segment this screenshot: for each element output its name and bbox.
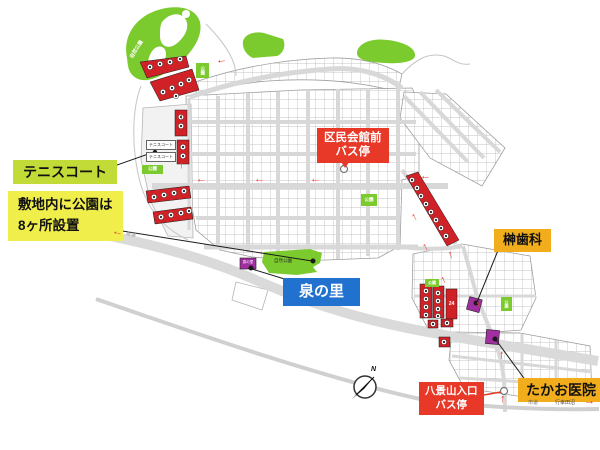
izumi-no-sato-callout: 泉の里 [283,278,360,306]
compass-icon [352,376,376,399]
hakkeyama-bus-stop-callout: 八景山入口 バス停 [419,382,484,415]
tennis-court-callout: テニスコート [13,160,117,184]
parks-note-line1: 敷地内に公園は [18,195,113,216]
compass-north-label: N [371,366,376,373]
one-way-arrow-up: ↑ [499,350,505,361]
one-way-arrow-left: ← [310,174,321,185]
one-way-arrow-left: ← [420,171,431,182]
one-way-arrow-up: ↑ [500,394,506,405]
map-canvas: テニスコート 敷地内に公園は 8ヶ所設置 泉の里 区民会館前 バス停 榊歯科 た… [0,0,600,450]
one-way-arrow-left: ← [215,54,227,66]
park-badge-1: 公園 [196,63,209,78]
kumin-line2: バス停 [324,145,382,159]
park-badge-4: 公園 [425,279,439,287]
hakkeyama-line1: 八景山入口 [425,385,478,399]
kumin-kaikan-bus-stop-callout: 区民会館前 バス停 [317,128,389,163]
park-badge-3: 公園 [361,194,377,206]
park-badge-5: 公園 [501,297,512,311]
city-road-label: 市道 [528,399,538,406]
prefectural-road-label: 県道 [125,230,136,239]
one-way-arrow-left: ← [196,174,207,185]
one-way-arrow-up: ↑ [179,160,185,171]
nature-park-label-mid: 自然公園 [274,258,292,264]
hakkeyama-line2: バス停 [425,399,478,413]
miyukida-numa-label: 行幸田沼 [555,399,575,406]
one-way-arrow-left: ← [254,174,265,185]
parks-note-line2: 8ヶ所設置 [18,216,113,237]
kumin-bus-stop-marker [341,166,348,173]
tennis-court-map-box-2: テニスコート [146,152,176,162]
sakaki-dental-callout: 榊歯科 [494,229,551,252]
izumi-site-label: 泉の里 [240,260,256,265]
park-badge-2: 公園 [142,165,163,174]
parks-note-callout: 敷地内に公園は 8ヶ所設置 [8,191,123,241]
one-way-arrow-left: ← [111,226,124,239]
one-way-arrow-up: ↑ [179,112,185,123]
kumin-line1: 区民会館前 [324,131,382,145]
one-way-arrow-right: → [584,396,595,407]
lot-24-label: 24 [446,301,457,307]
tennis-court-map-box-1: テニスコート [146,140,176,150]
